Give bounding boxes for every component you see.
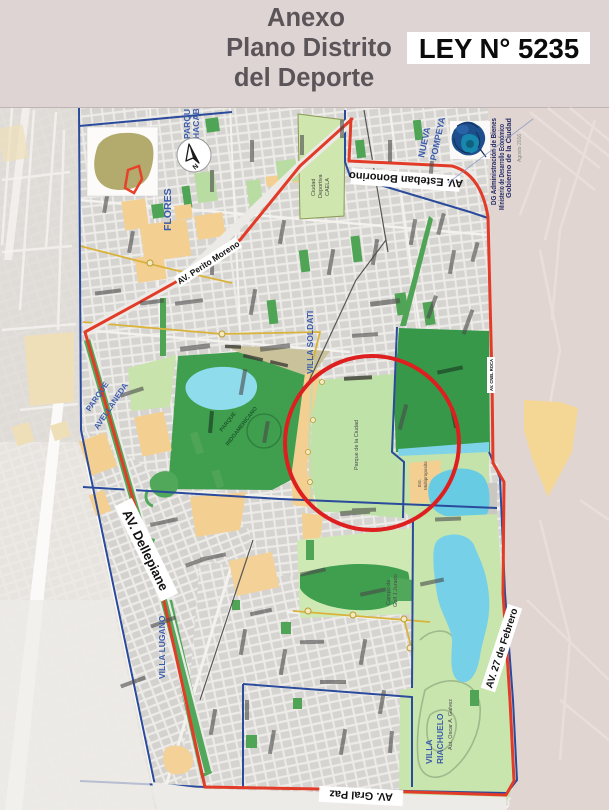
- svg-text:Multiproposito: Multiproposito: [423, 461, 428, 490]
- svg-text:Aut. Oscar A. Galvez: Aut. Oscar A. Galvez: [448, 699, 454, 750]
- svg-text:Est.: Est.: [417, 479, 422, 487]
- svg-text:CAELA: CAELA: [325, 178, 331, 196]
- svg-text:VILLA LUGANO: VILLA LUGANO: [157, 615, 167, 679]
- svg-text:VILLA SOLDATI: VILLA SOLDATI: [305, 311, 315, 374]
- svg-text:RIACHUELO: RIACHUELO: [435, 713, 445, 764]
- svg-text:LEY N° 5235: LEY N° 5235: [419, 33, 579, 64]
- svg-text:DG Administración de Bienes: DG Administración de Bienes: [491, 118, 498, 205]
- svg-text:AV. CNEL ROCA: AV. CNEL ROCA: [489, 358, 494, 391]
- svg-text:Golf J.Jurado: Golf J.Jurado: [393, 574, 399, 607]
- svg-text:Parque de la Ciudad: Parque de la Ciudad: [354, 420, 360, 470]
- svg-text:Ciudad: Ciudad: [311, 179, 317, 196]
- svg-text:del Deporte: del Deporte: [234, 64, 374, 92]
- svg-text:FLORES: FLORES: [162, 188, 174, 231]
- svg-text:Campo de: Campo de: [386, 580, 392, 605]
- svg-text:Agosto 2016: Agosto 2016: [517, 134, 523, 162]
- svg-text:Plano Distrito: Plano Distrito: [226, 34, 392, 62]
- svg-text:Anexo: Anexo: [267, 4, 345, 32]
- svg-text:Gobierno de la Ciudad: Gobierno de la Ciudad: [506, 118, 513, 198]
- svg-text:HACAB: HACAB: [191, 108, 201, 139]
- svg-text:Ministerio de Desarrollo Econó: Ministerio de Desarrollo Económico: [499, 124, 506, 210]
- svg-text:Deportiva: Deportiva: [318, 174, 324, 198]
- svg-text:VILLA: VILLA: [424, 739, 434, 764]
